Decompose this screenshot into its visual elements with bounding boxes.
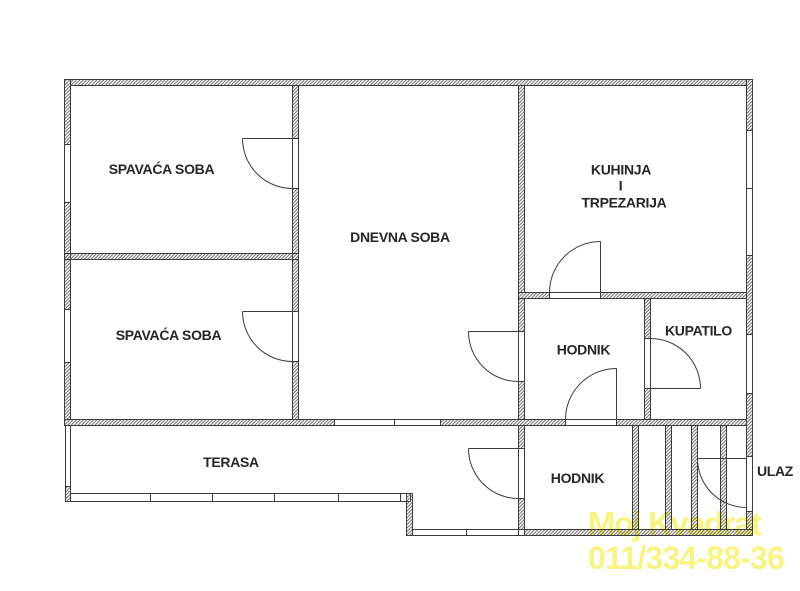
svg-text:011/334-88-36: 011/334-88-36	[588, 540, 784, 576]
svg-text:KUHINJA: KUHINJA	[591, 162, 651, 178]
svg-text:DNEVNA SOBA: DNEVNA SOBA	[350, 229, 450, 245]
svg-text:SPAVAĆA SOBA: SPAVAĆA SOBA	[116, 326, 222, 343]
svg-text:ULAZ: ULAZ	[757, 463, 794, 479]
svg-text:TERASA: TERASA	[203, 454, 259, 470]
svg-text:HODNIK: HODNIK	[557, 342, 611, 358]
svg-text:HODNIK: HODNIK	[551, 470, 605, 486]
svg-text:I: I	[619, 178, 623, 194]
svg-text:TRPEZARIJA: TRPEZARIJA	[582, 195, 667, 211]
svg-text:Moj Kvadrat: Moj Kvadrat	[588, 505, 762, 542]
svg-text:KUPATILO: KUPATILO	[665, 323, 732, 339]
svg-text:SPAVAĆA SOBA: SPAVAĆA SOBA	[109, 160, 215, 177]
